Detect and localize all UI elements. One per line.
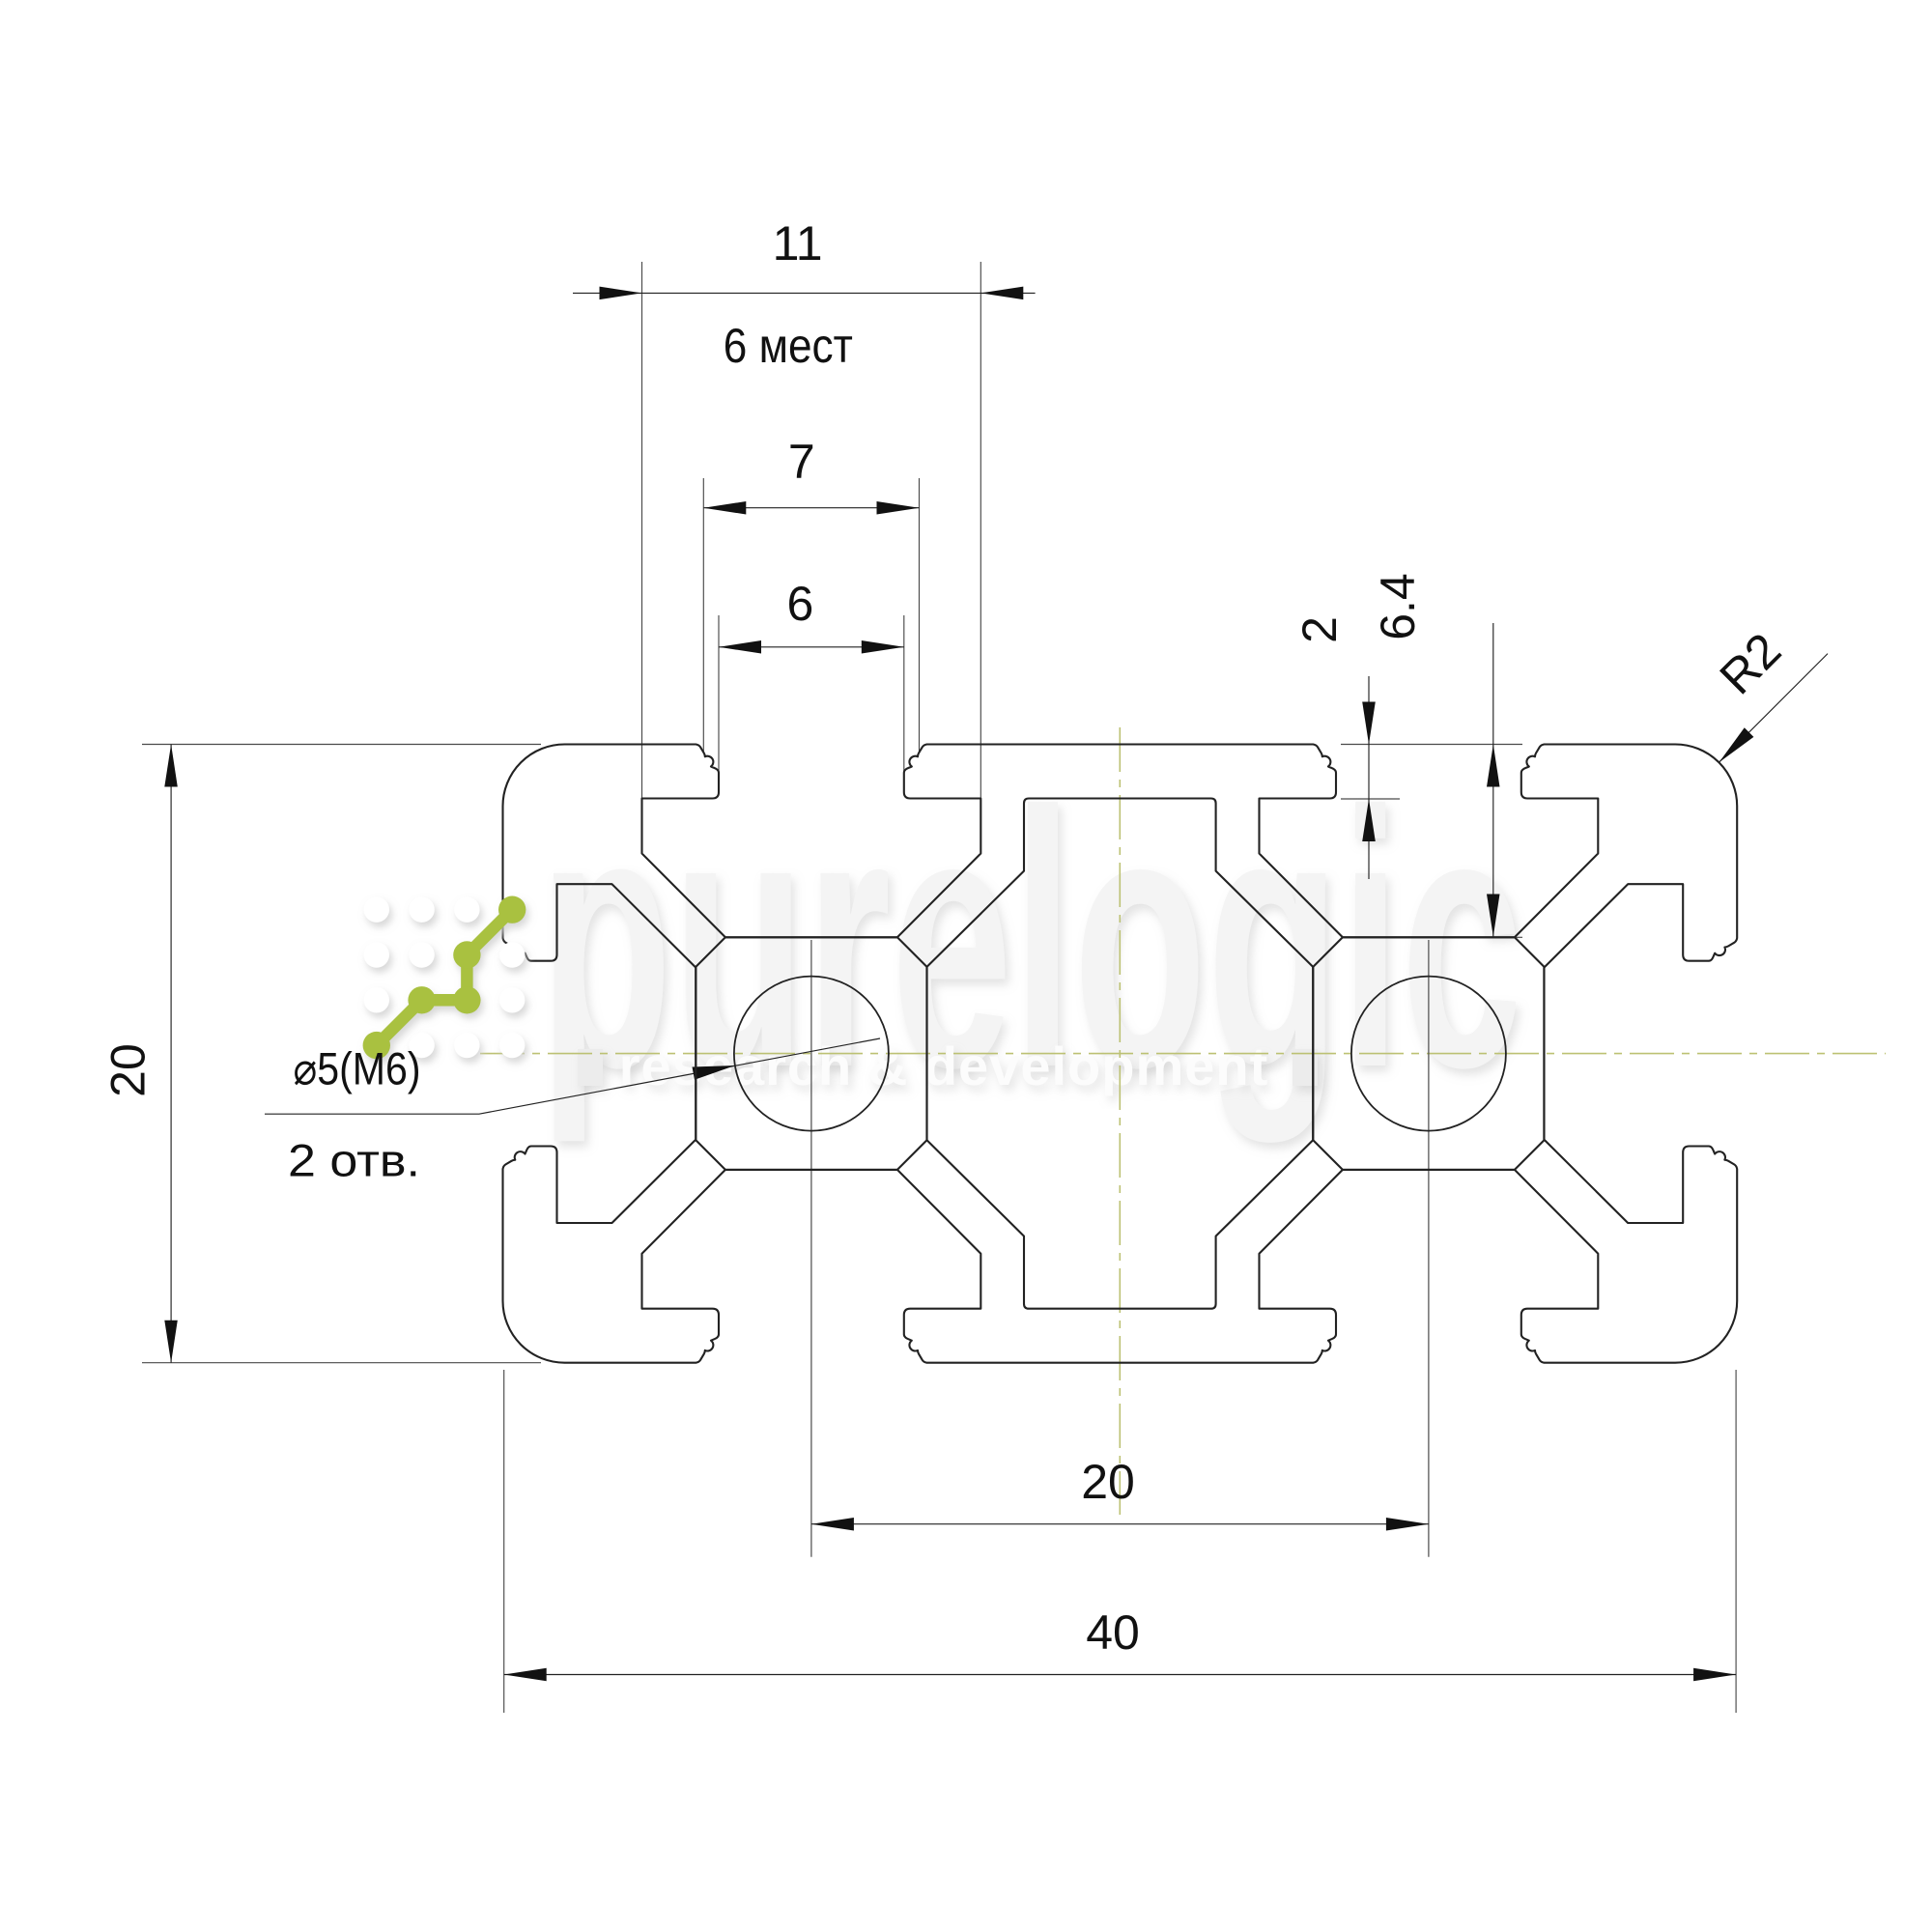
- svg-text:7: 7: [788, 435, 815, 489]
- svg-text:research & development: research & development: [619, 1036, 1268, 1096]
- svg-text:6 мест: 6 мест: [724, 319, 853, 373]
- svg-text:⌀5(М6): ⌀5(М6): [294, 1043, 421, 1094]
- svg-text:20: 20: [1081, 1455, 1135, 1509]
- svg-text:11: 11: [773, 216, 823, 270]
- svg-text:40: 40: [1086, 1605, 1140, 1660]
- svg-text:6.4: 6.4: [1371, 573, 1425, 640]
- svg-text:6: 6: [786, 577, 813, 631]
- svg-text:20: 20: [101, 1043, 156, 1097]
- svg-text:2: 2: [1293, 616, 1347, 643]
- svg-text:2 отв.: 2 отв.: [288, 1135, 420, 1186]
